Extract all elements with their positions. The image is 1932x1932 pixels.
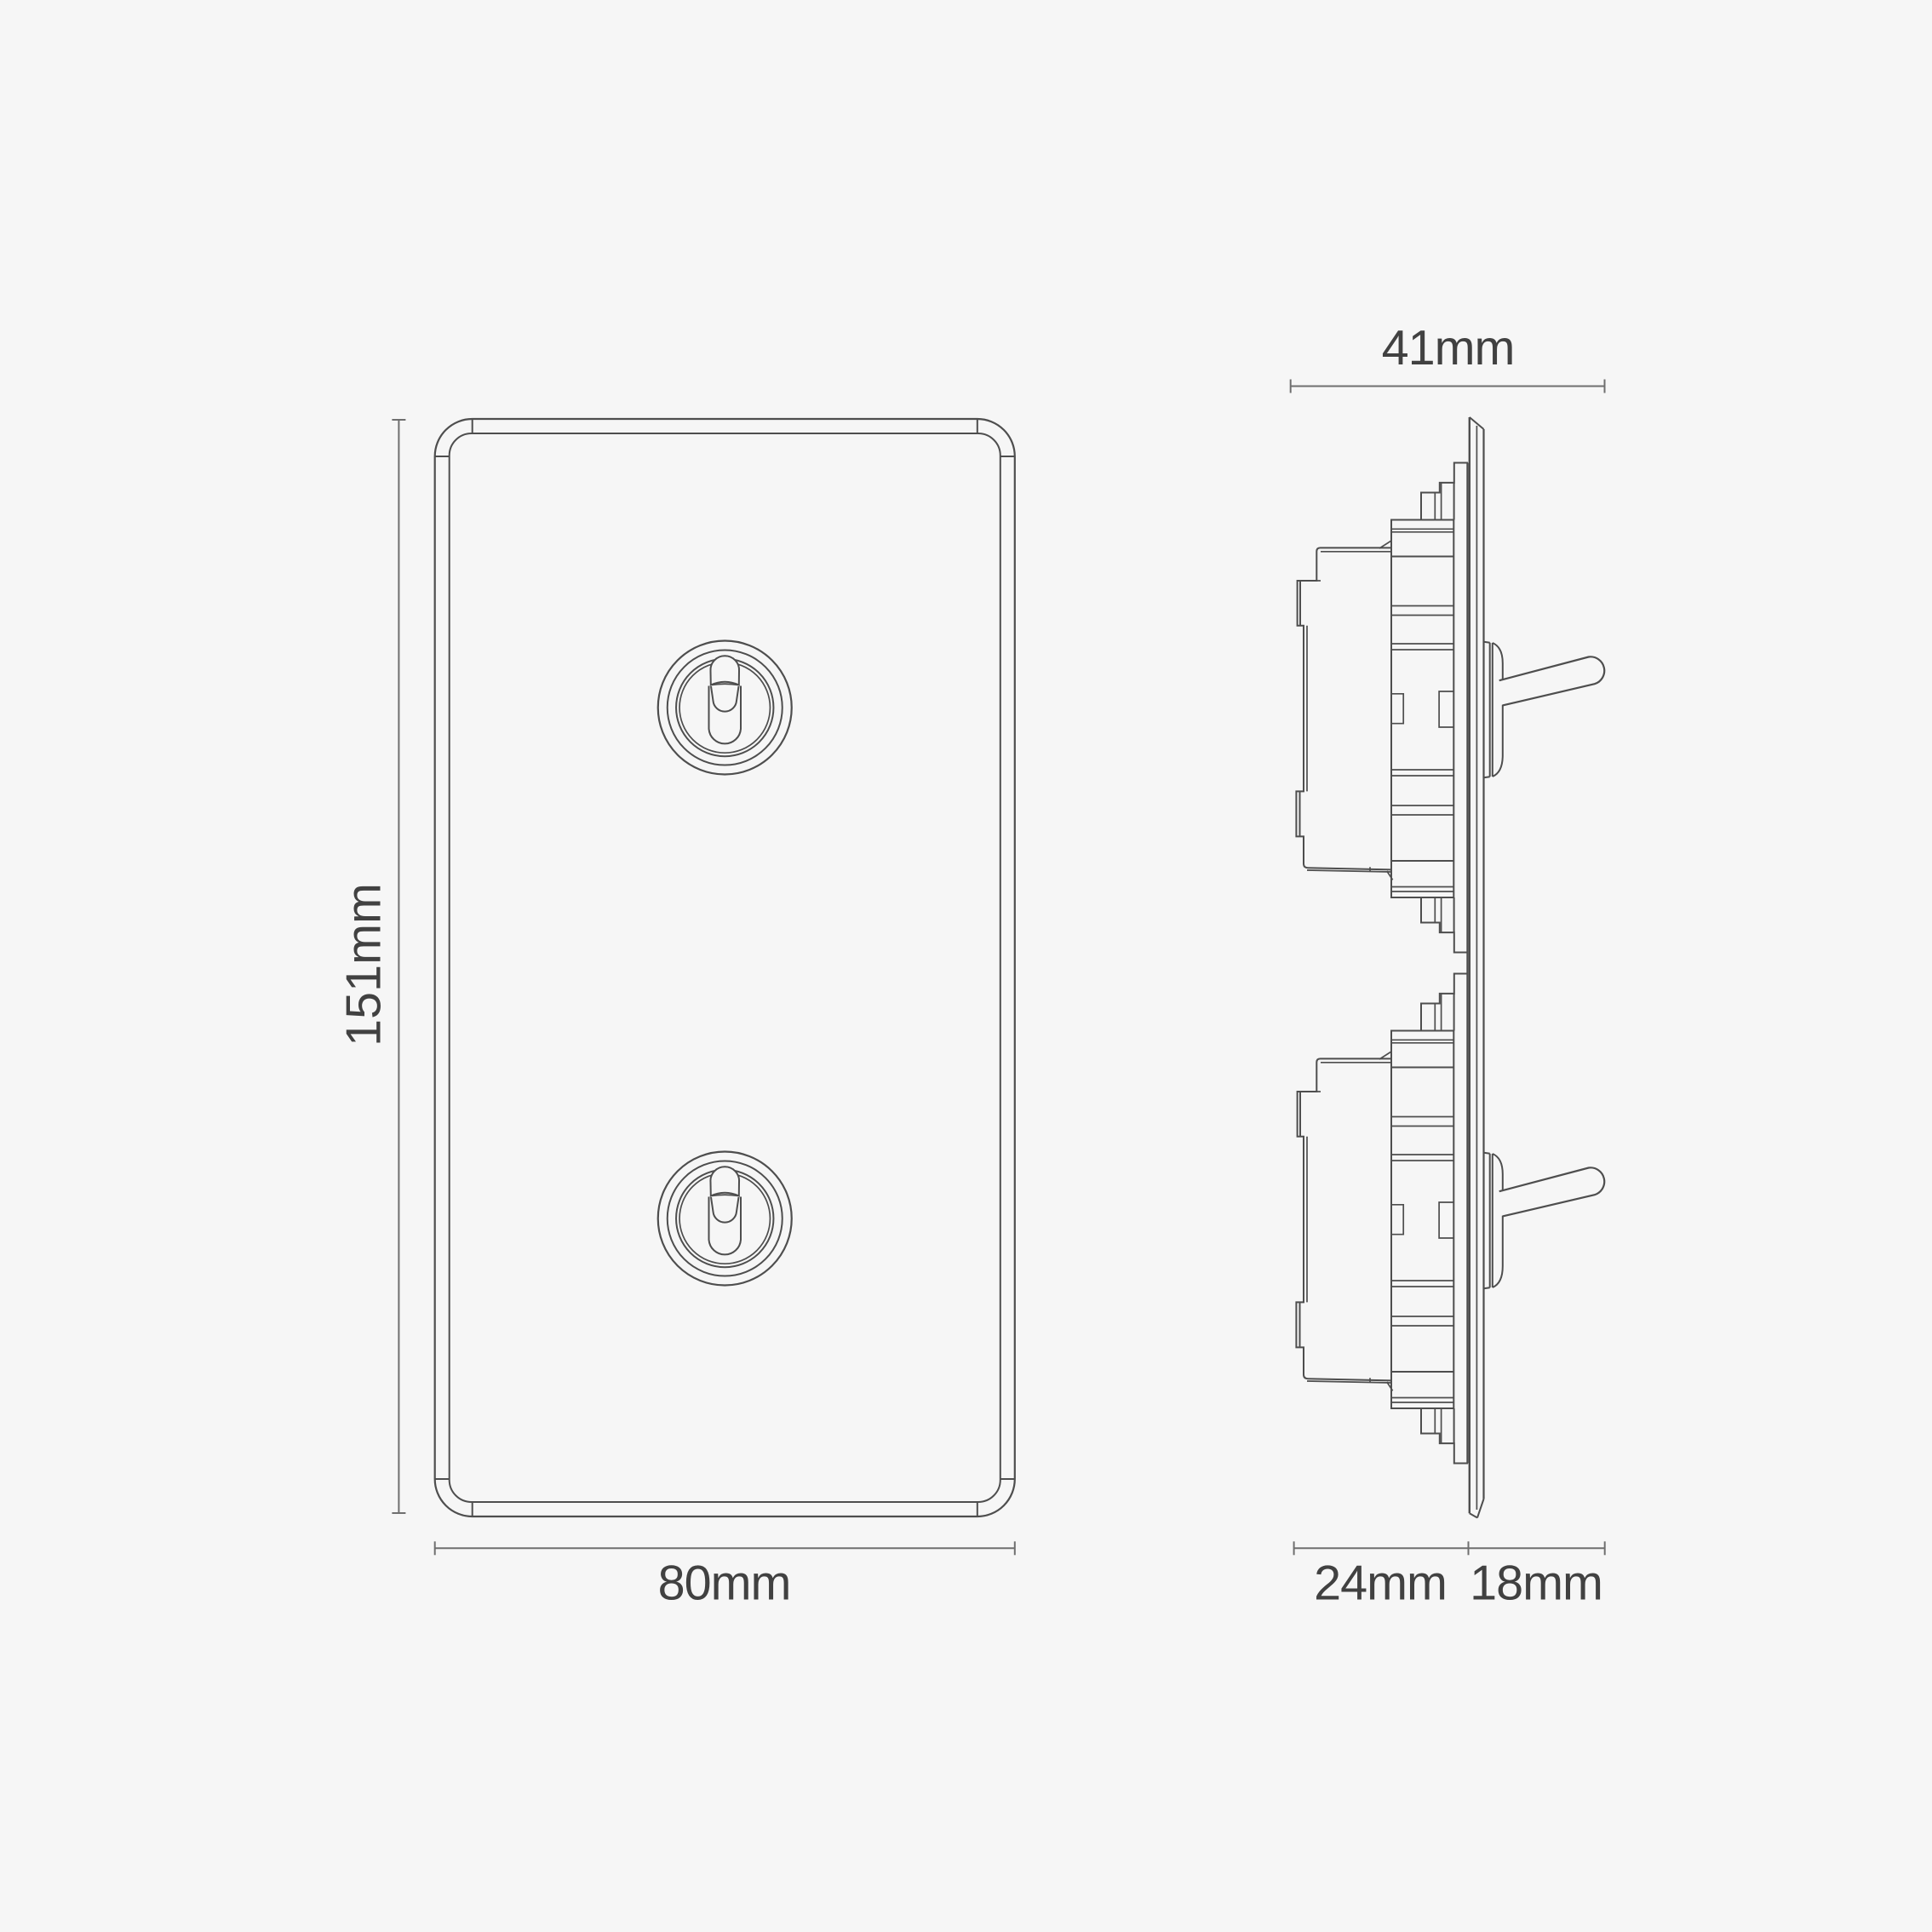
svg-text:41mm: 41mm <box>1382 321 1515 376</box>
svg-text:151mm: 151mm <box>337 883 392 1046</box>
svg-text:18mm: 18mm <box>1470 1556 1602 1611</box>
svg-text:24mm: 24mm <box>1314 1556 1447 1611</box>
svg-text:80mm: 80mm <box>658 1556 791 1611</box>
